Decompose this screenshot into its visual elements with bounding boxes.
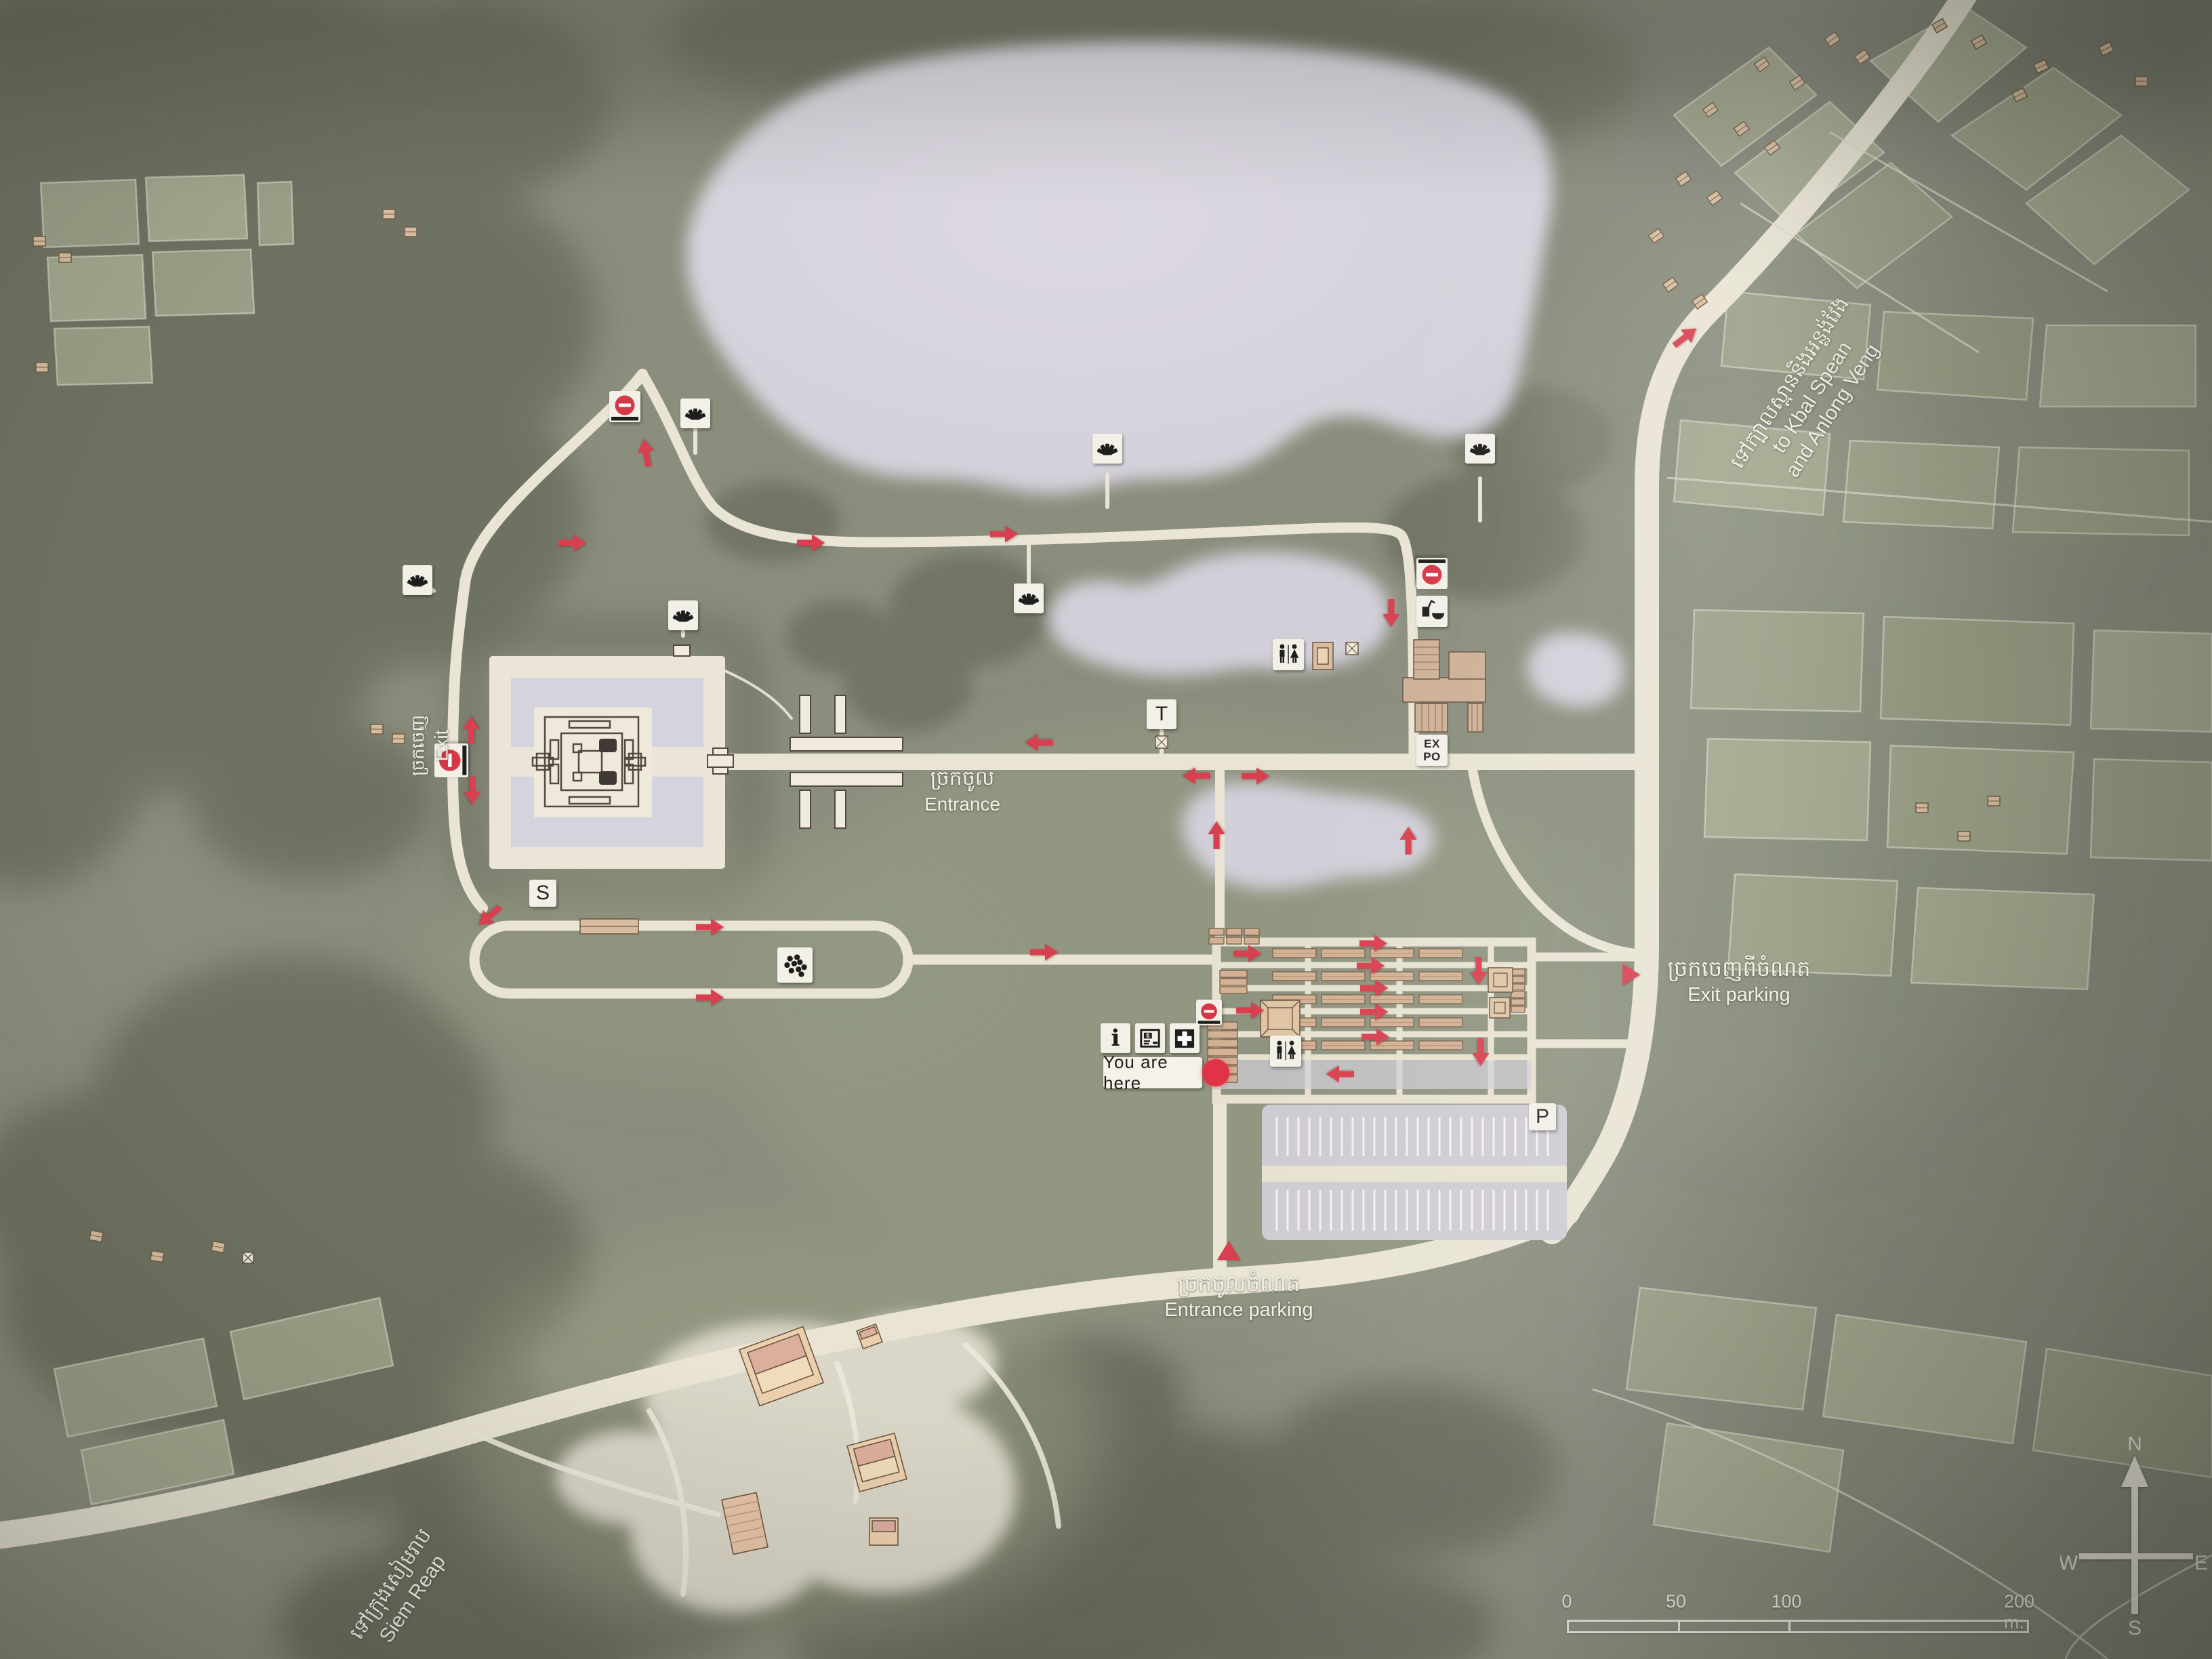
compass-n: N: [2127, 1437, 2142, 1455]
entrance-parking-marker: [1217, 1241, 1240, 1260]
you-are-here-box: You are here: [1103, 1057, 1202, 1088]
scale-tick-0: 0: [1561, 1591, 1572, 1612]
map-board: TSPEXPO i $ ច្រកចេញExitច្រកចូលEntranceច្…: [0, 0, 2212, 1659]
compass-w: W: [2060, 1552, 2078, 1574]
compass-e: E: [2194, 1552, 2208, 1574]
you-are-here-label: You are here: [1103, 1052, 1202, 1094]
scale-bar-rule: [1567, 1620, 2029, 1633]
compass-s: S: [2128, 1617, 2142, 1639]
parking-lot: [1262, 1105, 1567, 1240]
compass-rose: N W E S: [2060, 1437, 2209, 1647]
you-are-here-dot: [1202, 1059, 1229, 1086]
scale-tick-100: 100: [1771, 1591, 1801, 1612]
scale-bar: 0 50 100 200 m.: [1552, 1591, 2067, 1639]
map-terrain: [0, 0, 2212, 1659]
market: [1208, 928, 1532, 1099]
x-marker: [243, 1252, 253, 1263]
exit-parking-marker: [1622, 964, 1640, 985]
scale-tick-50: 50: [1666, 1591, 1686, 1612]
